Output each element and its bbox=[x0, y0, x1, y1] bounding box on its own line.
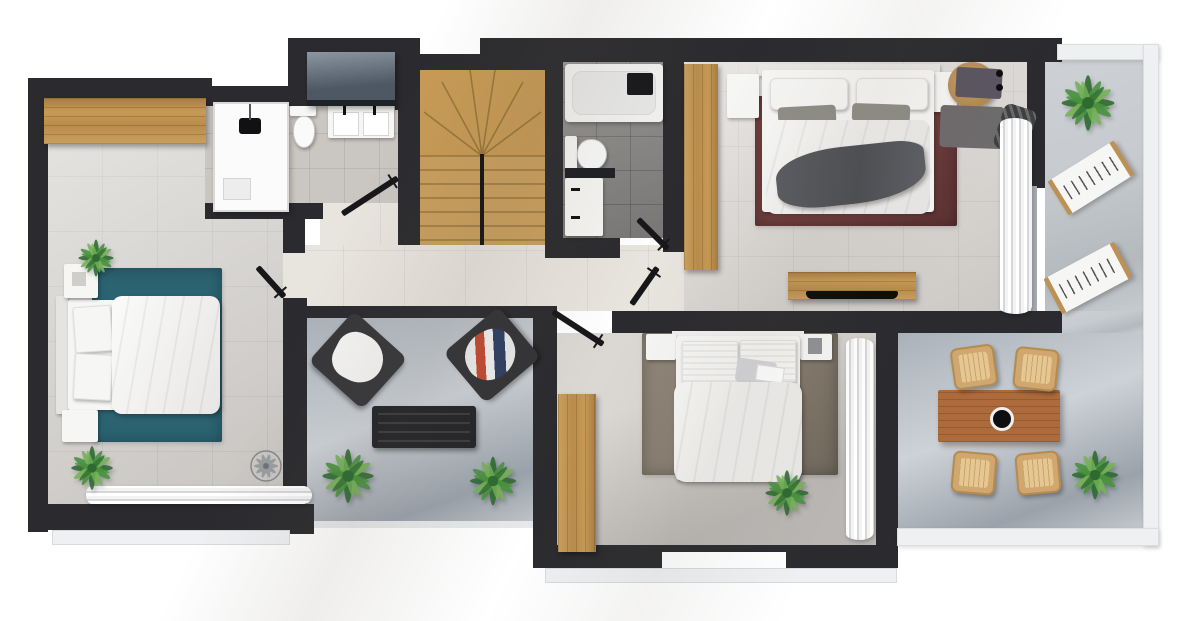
sink-basin bbox=[363, 112, 389, 136]
curtains-bedroom-master bbox=[1000, 118, 1032, 314]
wall-bedroom-master-top bbox=[663, 38, 1062, 62]
walk-in-shower bbox=[213, 102, 289, 212]
floor-plan-render bbox=[0, 0, 1200, 621]
curtains-bedroom-middle bbox=[846, 338, 874, 540]
coffee-table-slats bbox=[378, 412, 470, 442]
plant-bedroom-left-top bbox=[74, 236, 118, 280]
vanity-ensuite bbox=[565, 178, 603, 236]
wall-left bbox=[28, 78, 48, 532]
chair-seat bbox=[958, 458, 990, 489]
double-sink-vanity bbox=[328, 104, 394, 138]
desk-cup bbox=[996, 70, 1003, 77]
nightstand-middle-left bbox=[646, 334, 676, 360]
bed-left-pillow bbox=[73, 353, 113, 401]
bathtub bbox=[565, 64, 663, 122]
dining-chair bbox=[949, 343, 998, 391]
toilet-ensuite-tank bbox=[565, 136, 577, 170]
chair-seat bbox=[1022, 458, 1054, 489]
floor-hall-doorway bbox=[663, 252, 684, 311]
plant-terrace-dining bbox=[1066, 446, 1124, 504]
dining-chair bbox=[1012, 346, 1060, 392]
chair-seat bbox=[957, 351, 991, 383]
wall-bedroom-middle-right bbox=[876, 311, 898, 568]
armchair-blanket-white bbox=[325, 325, 391, 390]
coffee-table-slatted bbox=[372, 406, 476, 448]
table-centerpiece bbox=[990, 407, 1014, 431]
vanity-ensuite-counter bbox=[565, 168, 615, 178]
tv-screen bbox=[806, 291, 898, 299]
ceiling-fan-icon bbox=[248, 448, 284, 484]
window-sill-left bbox=[52, 530, 290, 545]
wall-stairs-right bbox=[545, 38, 563, 245]
nightstand-master-left bbox=[727, 74, 759, 118]
dining-table bbox=[938, 390, 1060, 442]
parapet-terrace-bottom bbox=[897, 528, 1159, 546]
dining-chair bbox=[1014, 450, 1061, 496]
wall-main-horizontal bbox=[612, 311, 1062, 333]
bed-left-pillow bbox=[72, 305, 113, 354]
plant-bedroom-left-bottom bbox=[66, 442, 118, 494]
floor-terrace-connector bbox=[1062, 311, 1143, 335]
nightstand-left-bottom bbox=[62, 410, 98, 442]
faucet bbox=[571, 188, 580, 191]
sliding-window-track bbox=[662, 545, 790, 552]
toilet-main-tank bbox=[290, 106, 316, 116]
shower-head bbox=[239, 118, 261, 134]
chair-seat bbox=[1020, 354, 1053, 385]
stairs-graphic bbox=[420, 70, 545, 245]
wall-bedroom-master-left bbox=[663, 38, 684, 252]
bed-left-headboard bbox=[56, 296, 68, 414]
armchair-blanket-striped bbox=[456, 321, 524, 388]
wall-stairs-left bbox=[398, 40, 420, 245]
toilet-main-bowl bbox=[293, 116, 315, 148]
dining-chair bbox=[950, 450, 997, 496]
plant-lounge-left bbox=[316, 444, 380, 508]
wall-bedroom-middle-left bbox=[533, 306, 557, 568]
faucet bbox=[571, 216, 580, 219]
bed-left-duvet bbox=[112, 296, 220, 414]
toilet-ensuite-bowl bbox=[577, 139, 607, 170]
wall-bedroom-middle-bottom-a bbox=[533, 545, 662, 568]
staircase bbox=[420, 70, 545, 245]
parapet-terrace-right bbox=[1143, 44, 1159, 546]
wall-bottom-left bbox=[28, 504, 262, 530]
shower-mat bbox=[223, 178, 251, 200]
bath-caddy bbox=[627, 73, 653, 95]
shower-pipe bbox=[249, 104, 251, 120]
palm-plant bbox=[1055, 70, 1121, 136]
bed-middle-pillow bbox=[682, 341, 738, 383]
faucet bbox=[373, 106, 376, 115]
laundry-cabinet bbox=[307, 52, 395, 106]
wardrobe-bedroom-middle bbox=[558, 394, 596, 552]
faucet bbox=[343, 106, 346, 115]
wardrobe-bedroom-master bbox=[684, 64, 718, 270]
plant-bedroom-middle bbox=[760, 466, 814, 520]
desk-cup bbox=[996, 84, 1003, 91]
wall-stairs-top-step bbox=[480, 38, 545, 56]
plant-lounge-right bbox=[464, 452, 522, 510]
wall-stairs-top bbox=[420, 54, 545, 70]
nightstand-item bbox=[808, 338, 822, 354]
curtains-bedroom-left bbox=[86, 486, 312, 504]
window-sill-middle bbox=[545, 568, 897, 583]
lounge-edge bbox=[307, 521, 533, 528]
wall-laundry-niche-left bbox=[288, 38, 307, 100]
wall-bathroom-ensuite-bottom bbox=[545, 238, 620, 258]
sink-basin bbox=[333, 112, 359, 136]
wardrobe-bedroom-left bbox=[44, 98, 206, 144]
